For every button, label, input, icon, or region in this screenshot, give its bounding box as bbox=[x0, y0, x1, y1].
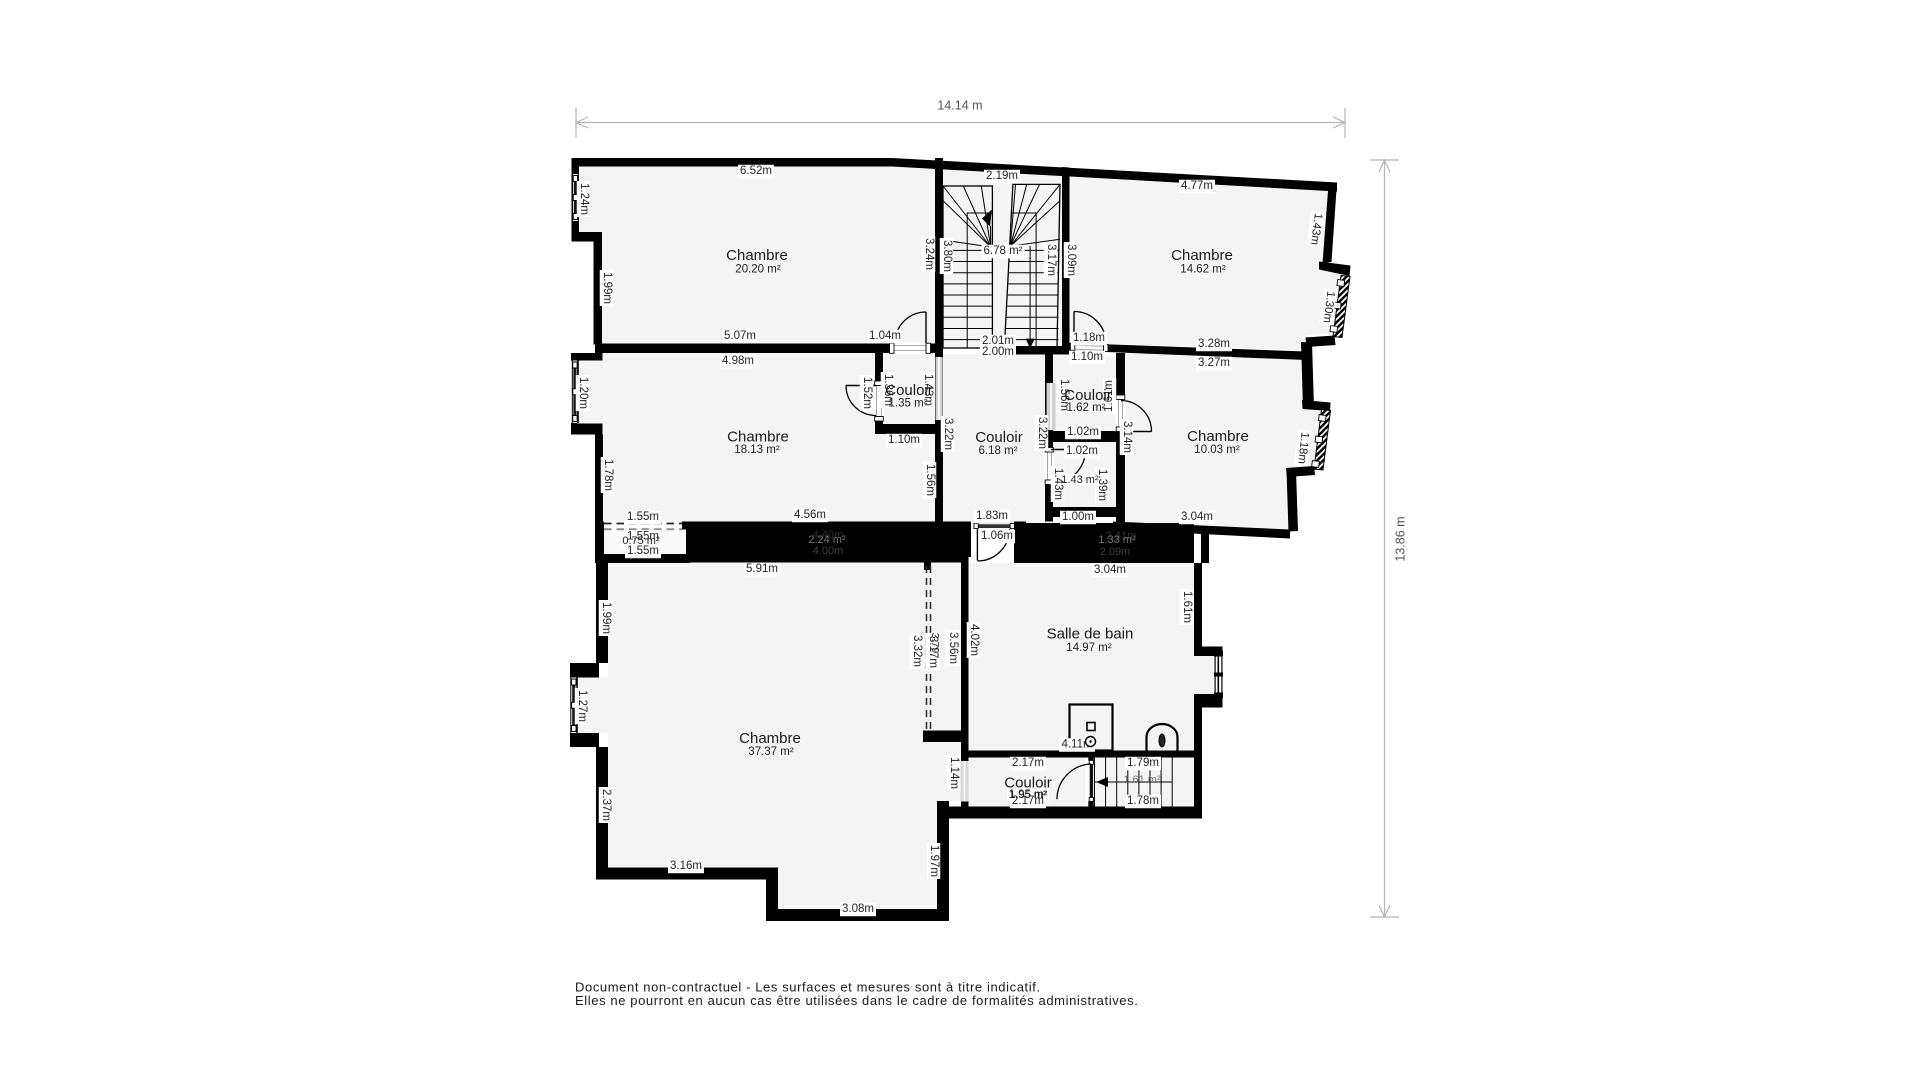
svg-text:1.95 m²: 1.95 m² bbox=[1009, 789, 1048, 801]
svg-text:1.83m: 1.83m bbox=[976, 510, 1008, 522]
svg-text:14.14 m: 14.14 m bbox=[937, 98, 982, 112]
svg-text:3.04m: 3.04m bbox=[1094, 564, 1126, 576]
svg-text:14.97 m²: 14.97 m² bbox=[1066, 642, 1112, 654]
svg-text:1.99m: 1.99m bbox=[601, 272, 613, 304]
svg-text:5.07m: 5.07m bbox=[724, 330, 756, 342]
svg-text:6.78 m²: 6.78 m² bbox=[984, 245, 1023, 257]
svg-text:1.10m: 1.10m bbox=[1071, 351, 1103, 363]
svg-text:3.16m: 3.16m bbox=[670, 860, 702, 872]
svg-text:4.77m: 4.77m bbox=[1181, 180, 1213, 192]
svg-text:3.08m: 3.08m bbox=[842, 903, 874, 915]
svg-text:3.28m: 3.28m bbox=[1198, 338, 1230, 350]
svg-text:1.14m: 1.14m bbox=[948, 757, 960, 789]
svg-text:3.32m: 3.32m bbox=[911, 635, 923, 667]
svg-text:1.78m: 1.78m bbox=[1127, 795, 1159, 807]
svg-text:6.52m: 6.52m bbox=[740, 165, 772, 177]
svg-text:1.35 m²: 1.35 m² bbox=[889, 398, 928, 410]
svg-text:1.43 m²: 1.43 m² bbox=[1061, 474, 1099, 486]
svg-text:1.39m: 1.39m bbox=[1096, 469, 1108, 501]
svg-text:1.61m: 1.61m bbox=[1181, 591, 1193, 623]
svg-text:14.62 m²: 14.62 m² bbox=[1180, 264, 1226, 276]
svg-text:Salle de bain: Salle de bain bbox=[1047, 625, 1134, 642]
svg-text:6.18 m²: 6.18 m² bbox=[979, 445, 1018, 457]
svg-text:1.99m: 1.99m bbox=[600, 602, 612, 634]
svg-text:3.24m: 3.24m bbox=[923, 238, 935, 270]
svg-text:1.61 m²: 1.61 m² bbox=[1123, 774, 1161, 786]
svg-text:1.78m: 1.78m bbox=[602, 459, 614, 491]
svg-text:1.55m: 1.55m bbox=[627, 511, 659, 523]
svg-text:1.18m: 1.18m bbox=[1073, 332, 1105, 344]
svg-text:1.62 m²: 1.62 m² bbox=[1067, 402, 1106, 414]
svg-text:3.09m: 3.09m bbox=[1065, 244, 1077, 276]
svg-text:1.10m: 1.10m bbox=[888, 434, 920, 446]
svg-text:1.55m: 1.55m bbox=[627, 545, 659, 557]
svg-text:1.02m: 1.02m bbox=[1067, 426, 1099, 438]
svg-text:4.00m: 4.00m bbox=[813, 545, 844, 557]
svg-text:Couloir: Couloir bbox=[885, 382, 933, 399]
svg-text:2.37m: 2.37m bbox=[600, 789, 612, 821]
svg-text:3.17m: 3.17m bbox=[1045, 244, 1057, 276]
svg-text:3.22m: 3.22m bbox=[1036, 417, 1048, 449]
svg-text:20.20 m²: 20.20 m² bbox=[735, 264, 781, 276]
svg-text:2.17m: 2.17m bbox=[1012, 757, 1044, 769]
svg-text:1.52m: 1.52m bbox=[861, 377, 873, 409]
svg-text:13.86 m: 13.86 m bbox=[1393, 516, 1407, 561]
svg-text:4.56m: 4.56m bbox=[794, 509, 826, 521]
svg-text:2.00m: 2.00m bbox=[982, 346, 1014, 358]
svg-text:3.79: 3.79 bbox=[929, 633, 941, 654]
svg-text:37.37 m²: 37.37 m² bbox=[748, 746, 794, 758]
svg-text:4.02m: 4.02m bbox=[968, 624, 980, 656]
svg-text:1.00m: 1.00m bbox=[1062, 511, 1094, 523]
svg-text:3.27m: 3.27m bbox=[1198, 357, 1230, 369]
svg-text:3.56m: 3.56m bbox=[947, 632, 959, 664]
svg-text:Chambre: Chambre bbox=[727, 428, 789, 445]
svg-text:2.19m: 2.19m bbox=[986, 170, 1018, 182]
svg-text:18.13 m²: 18.13 m² bbox=[734, 444, 780, 456]
svg-text:10.03 m²: 10.03 m² bbox=[1194, 444, 1240, 456]
svg-text:Chambre: Chambre bbox=[726, 247, 788, 264]
svg-text:3.80m: 3.80m bbox=[941, 240, 953, 272]
svg-text:Chambre: Chambre bbox=[1171, 247, 1233, 264]
svg-text:1.02m: 1.02m bbox=[1066, 445, 1098, 457]
svg-text:1.20m: 1.20m bbox=[577, 377, 589, 409]
svg-text:5.91m: 5.91m bbox=[746, 563, 778, 575]
svg-text:2.09m: 2.09m bbox=[1100, 546, 1131, 558]
svg-text:3.04m: 3.04m bbox=[1181, 511, 1213, 523]
svg-text:1.43m: 1.43m bbox=[1052, 468, 1064, 500]
svg-text:4.98m: 4.98m bbox=[722, 355, 754, 367]
svg-text:Chambre: Chambre bbox=[1187, 428, 1249, 445]
svg-text:3.22m: 3.22m bbox=[942, 418, 954, 450]
svg-text:1.97m: 1.97m bbox=[928, 845, 940, 877]
svg-text:1.04m: 1.04m bbox=[869, 330, 901, 342]
svg-text:Chambre: Chambre bbox=[739, 730, 801, 747]
svg-text:1.79m: 1.79m bbox=[1127, 757, 1159, 769]
svg-text:1.27m: 1.27m bbox=[576, 690, 588, 722]
svg-text:1.33 m²: 1.33 m² bbox=[1098, 534, 1136, 546]
svg-text:Elles ne pourront en aucun cas: Elles ne pourront en aucun cas être util… bbox=[575, 993, 1138, 1008]
svg-text:1.56m: 1.56m bbox=[924, 464, 936, 496]
svg-text:Couloir: Couloir bbox=[975, 429, 1023, 446]
svg-text:1.24m: 1.24m bbox=[578, 183, 590, 215]
svg-text:1.06m: 1.06m bbox=[981, 530, 1013, 542]
svg-text:3.14m: 3.14m bbox=[1121, 421, 1133, 453]
